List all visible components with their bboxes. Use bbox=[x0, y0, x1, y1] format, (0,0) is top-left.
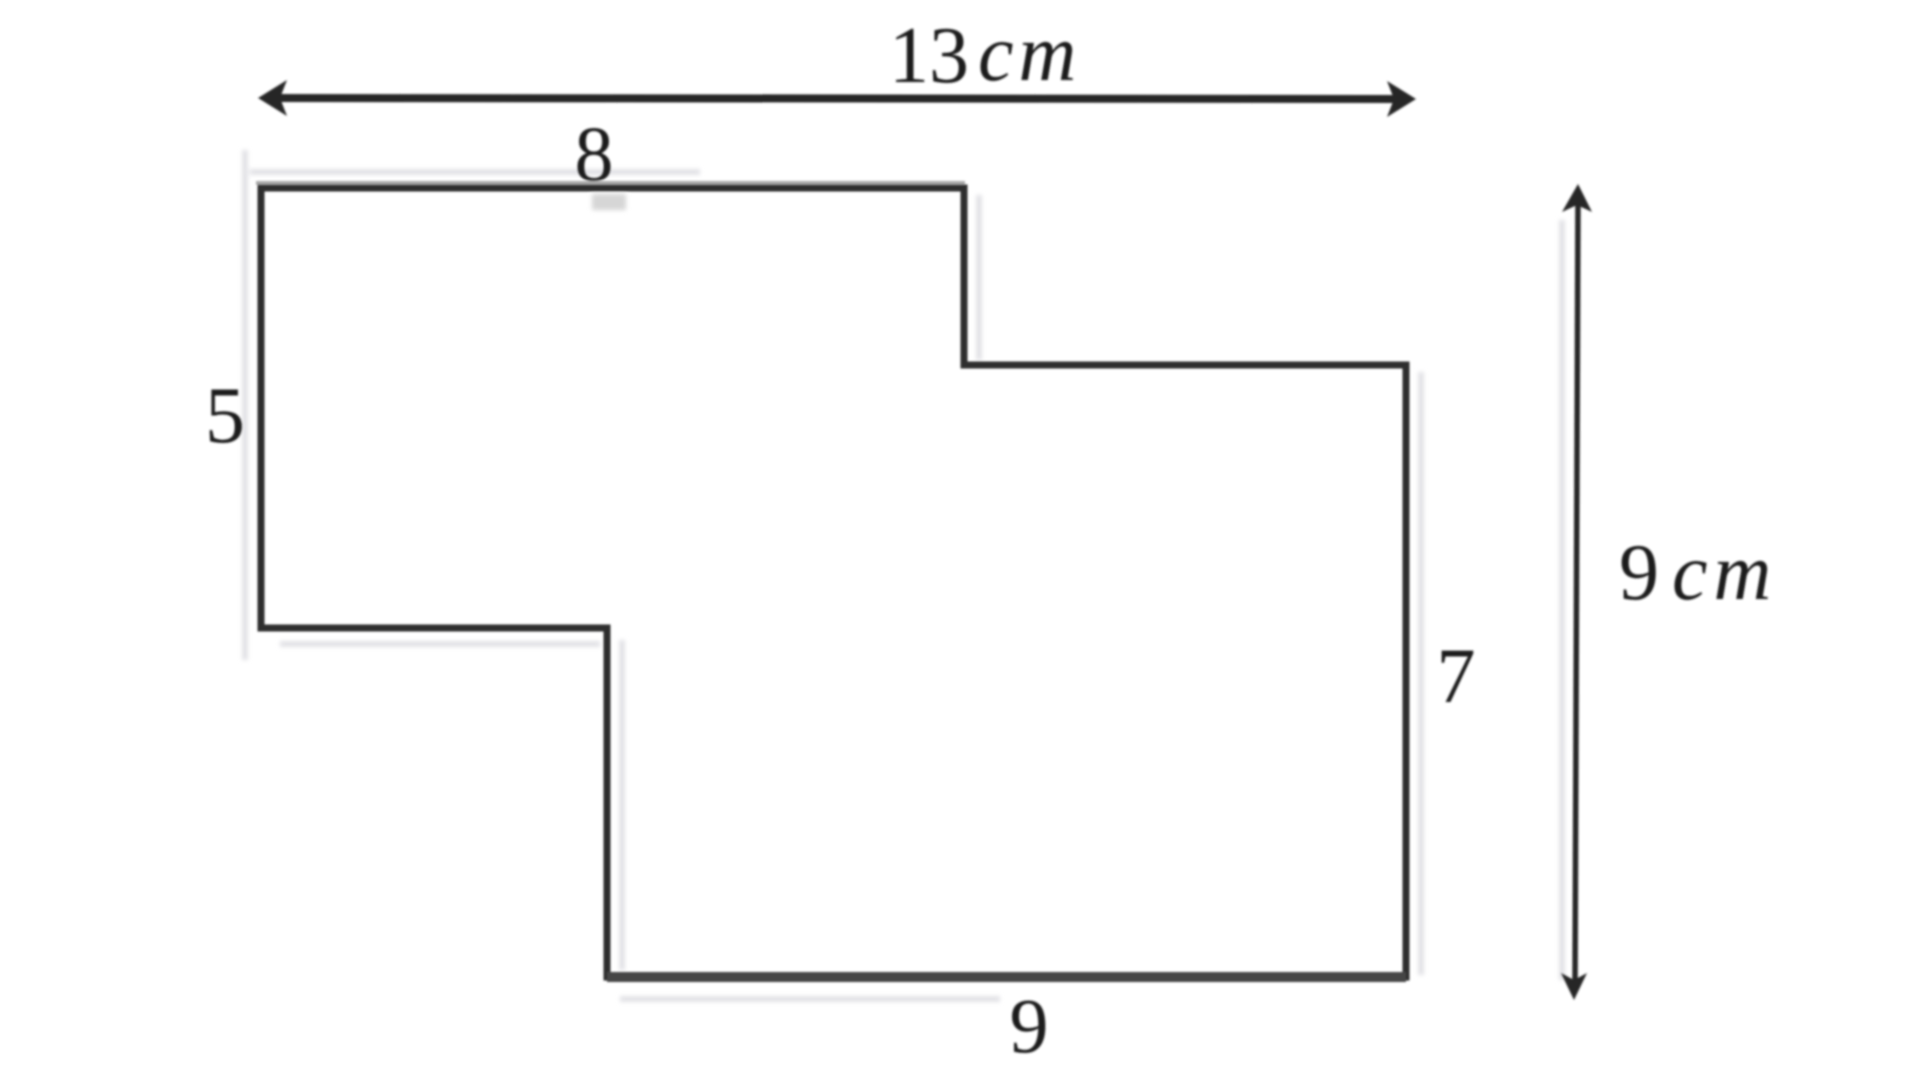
svg-text:9: 9 bbox=[1619, 529, 1659, 617]
svg-text:8: 8 bbox=[575, 110, 614, 197]
svg-text:cm: cm bbox=[1672, 529, 1777, 617]
svg-text:7: 7 bbox=[1437, 632, 1476, 719]
svg-text:13: 13 bbox=[889, 12, 969, 100]
svg-text:9: 9 bbox=[1010, 982, 1049, 1069]
svg-text:cm: cm bbox=[978, 10, 1081, 98]
svg-text:5: 5 bbox=[205, 372, 245, 460]
